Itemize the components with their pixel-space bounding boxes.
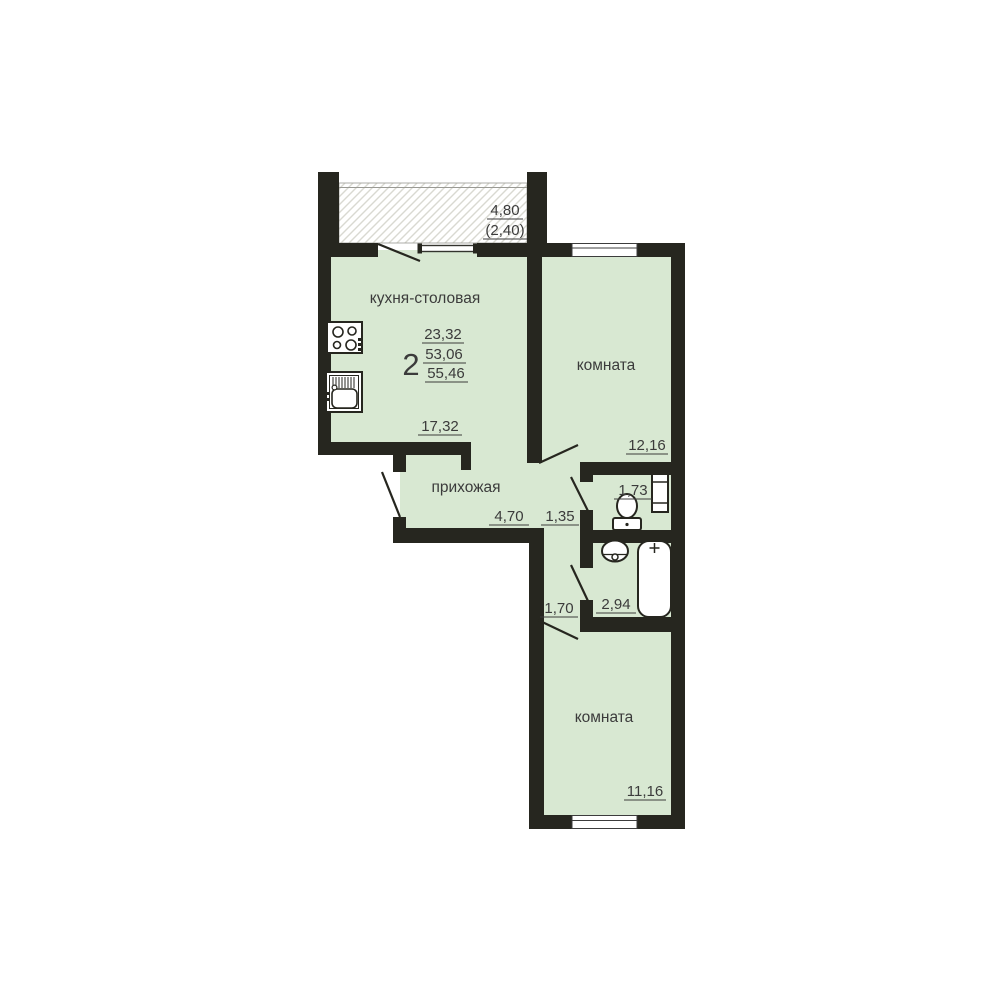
bathtub-icon (638, 541, 671, 617)
room-bottom-label: комната (575, 709, 634, 726)
room-bottom-area-label: 11,16 (627, 783, 663, 800)
wall-segment (529, 815, 572, 829)
wall-segment (393, 455, 406, 472)
wall-segment (580, 543, 593, 568)
wall-segment (580, 530, 685, 543)
corridor-lower-label: 1,70 (544, 600, 573, 617)
vent-shaft-icon (652, 474, 668, 512)
wall-segment (393, 528, 544, 543)
living-area-label: 23,32 (424, 326, 462, 343)
kitchen-label: кухня-столовая (370, 290, 480, 307)
wall-segment (637, 815, 685, 829)
balcony-reduced-area-label: (2,40) (485, 222, 524, 239)
washbasin-icon (602, 541, 628, 562)
wall-segment (318, 172, 339, 251)
floor-plan-drawing: 4,80 (2,40) кухня-столовая 2 23,32 53,06… (0, 0, 1000, 1000)
rooms-count-label: 2 (402, 347, 419, 382)
wall-segment (527, 250, 542, 463)
bathroom-area-label: 2,94 (601, 596, 630, 613)
hallway-area-label: 4,70 (494, 508, 523, 525)
room-top-area-label: 12,16 (628, 437, 666, 454)
window (572, 816, 637, 829)
balcony-window-bar (421, 246, 474, 252)
wall-segment (580, 617, 685, 632)
entrance-door-swing (382, 472, 400, 517)
stove-icon (327, 322, 362, 353)
room-top-label: комната (577, 357, 636, 374)
kitchen-sink-icon (326, 372, 362, 412)
balcony-window-cap (418, 244, 423, 254)
wall-segment (527, 172, 547, 251)
window (572, 244, 637, 257)
apartment-area-label: 53,06 (425, 346, 463, 363)
wall-segment (461, 442, 471, 470)
wc-area-label: 1,73 (618, 482, 647, 499)
wall-segment (580, 462, 685, 475)
wall-segment (318, 442, 470, 455)
total-area-label: 55,46 (427, 365, 465, 382)
wall-segment (529, 543, 544, 829)
wall-segment (580, 462, 593, 482)
kitchen-area-label: 17,32 (421, 418, 459, 435)
balcony-length-label: 4,80 (490, 202, 519, 219)
balcony-window-cap (473, 244, 478, 254)
floor-plan: 4,80 (2,40) кухня-столовая 2 23,32 53,06… (0, 0, 1000, 1000)
hallway-label: прихожая (431, 479, 500, 496)
wall-segment (547, 243, 572, 257)
corridor-upper-label: 1,35 (545, 508, 574, 525)
